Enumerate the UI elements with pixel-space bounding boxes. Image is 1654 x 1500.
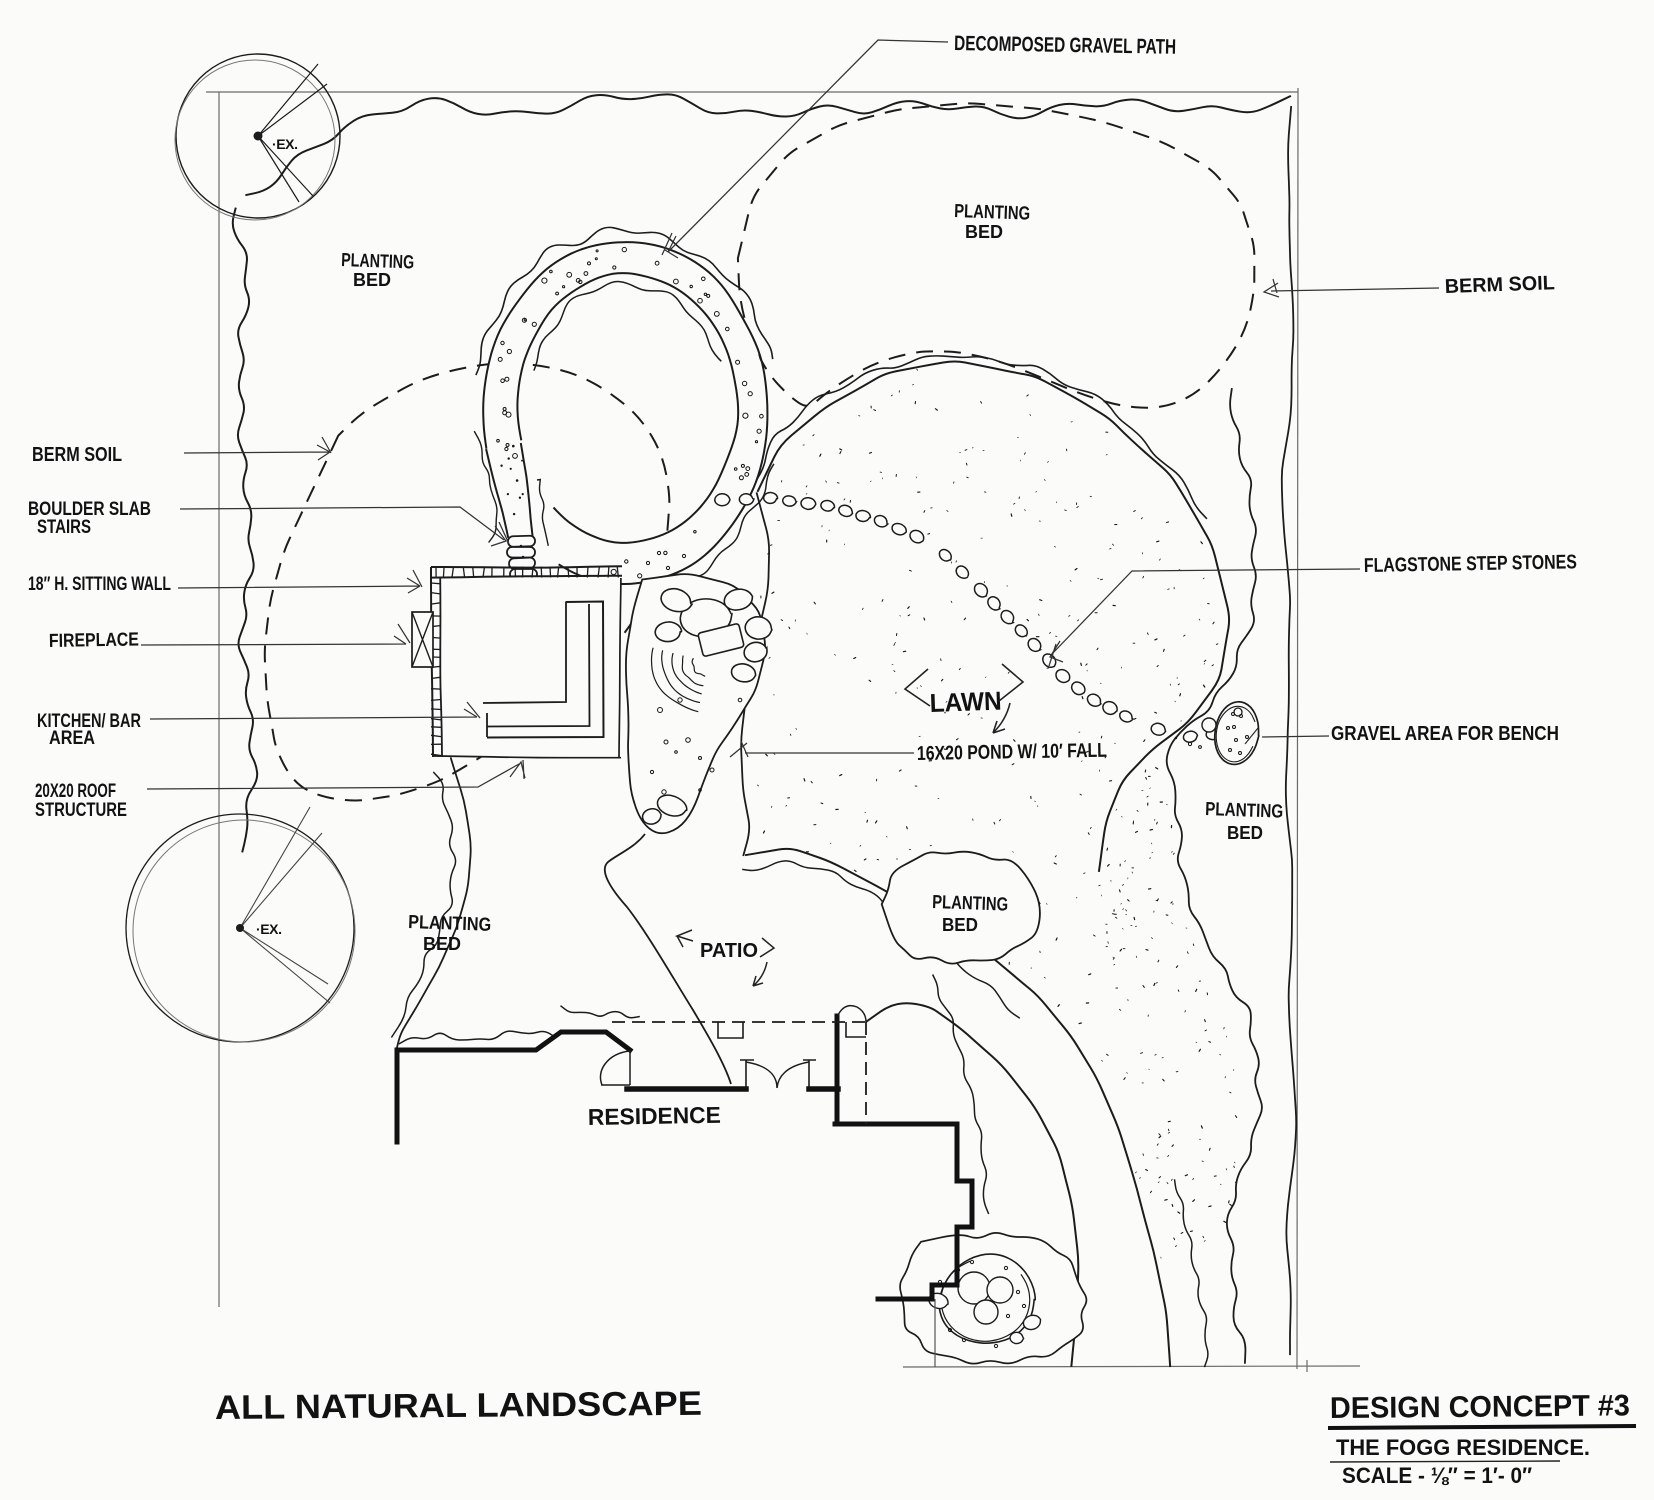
svg-text:ALL NATURAL LANDSCAPE: ALL NATURAL LANDSCAPE bbox=[215, 1385, 702, 1427]
svg-text:20X20 ROOF: 20X20 ROOF bbox=[35, 781, 116, 802]
svg-text:BED: BED bbox=[1227, 823, 1263, 843]
svg-text:STRUCTURE: STRUCTURE bbox=[35, 800, 127, 821]
svg-text:PLANTING: PLANTING bbox=[932, 892, 1009, 916]
svg-text:RESIDENCE: RESIDENCE bbox=[588, 1102, 721, 1130]
svg-text:DECOMPOSED GRAVEL PATH: DECOMPOSED GRAVEL PATH bbox=[954, 32, 1176, 59]
svg-text:16X20 POND W/ 10′ FALL: 16X20 POND W/ 10′ FALL bbox=[917, 740, 1107, 765]
svg-text:PLANTING: PLANTING bbox=[1205, 799, 1284, 823]
svg-text:BED: BED bbox=[353, 270, 391, 290]
svg-text:BERM SOIL: BERM SOIL bbox=[1444, 272, 1555, 298]
svg-text:FLAGSTONE STEP STONES: FLAGSTONE STEP STONES bbox=[1364, 551, 1577, 577]
svg-text:18″ H. SITTING WALL: 18″ H. SITTING WALL bbox=[28, 574, 171, 595]
svg-text:BED: BED bbox=[965, 222, 1003, 242]
svg-text:THE FOGG RESIDENCE.: THE FOGG RESIDENCE. bbox=[1336, 1435, 1590, 1460]
svg-text:FIREPLACE: FIREPLACE bbox=[49, 629, 139, 652]
svg-text:PATIO: PATIO bbox=[700, 940, 758, 962]
svg-text:STAIRS: STAIRS bbox=[37, 517, 91, 538]
svg-text:AREA: AREA bbox=[49, 728, 95, 749]
svg-text:SCALE - ⅛″ = 1′- 0″: SCALE - ⅛″ = 1′- 0″ bbox=[1342, 1463, 1532, 1488]
svg-text:BED: BED bbox=[942, 915, 978, 935]
svg-text:LAWN: LAWN bbox=[929, 686, 1002, 718]
svg-text:DESIGN CONCEPT #3: DESIGN CONCEPT #3 bbox=[1330, 1389, 1630, 1425]
svg-text:GRAVEL AREA FOR BENCH: GRAVEL AREA FOR BENCH bbox=[1331, 723, 1559, 745]
svg-text:·EX.: ·EX. bbox=[272, 136, 298, 152]
svg-text:BED: BED bbox=[423, 934, 461, 954]
svg-text:·EX.: ·EX. bbox=[256, 921, 282, 937]
svg-text:PLANTING: PLANTING bbox=[408, 912, 492, 936]
svg-text:BERM SOIL: BERM SOIL bbox=[32, 444, 122, 466]
